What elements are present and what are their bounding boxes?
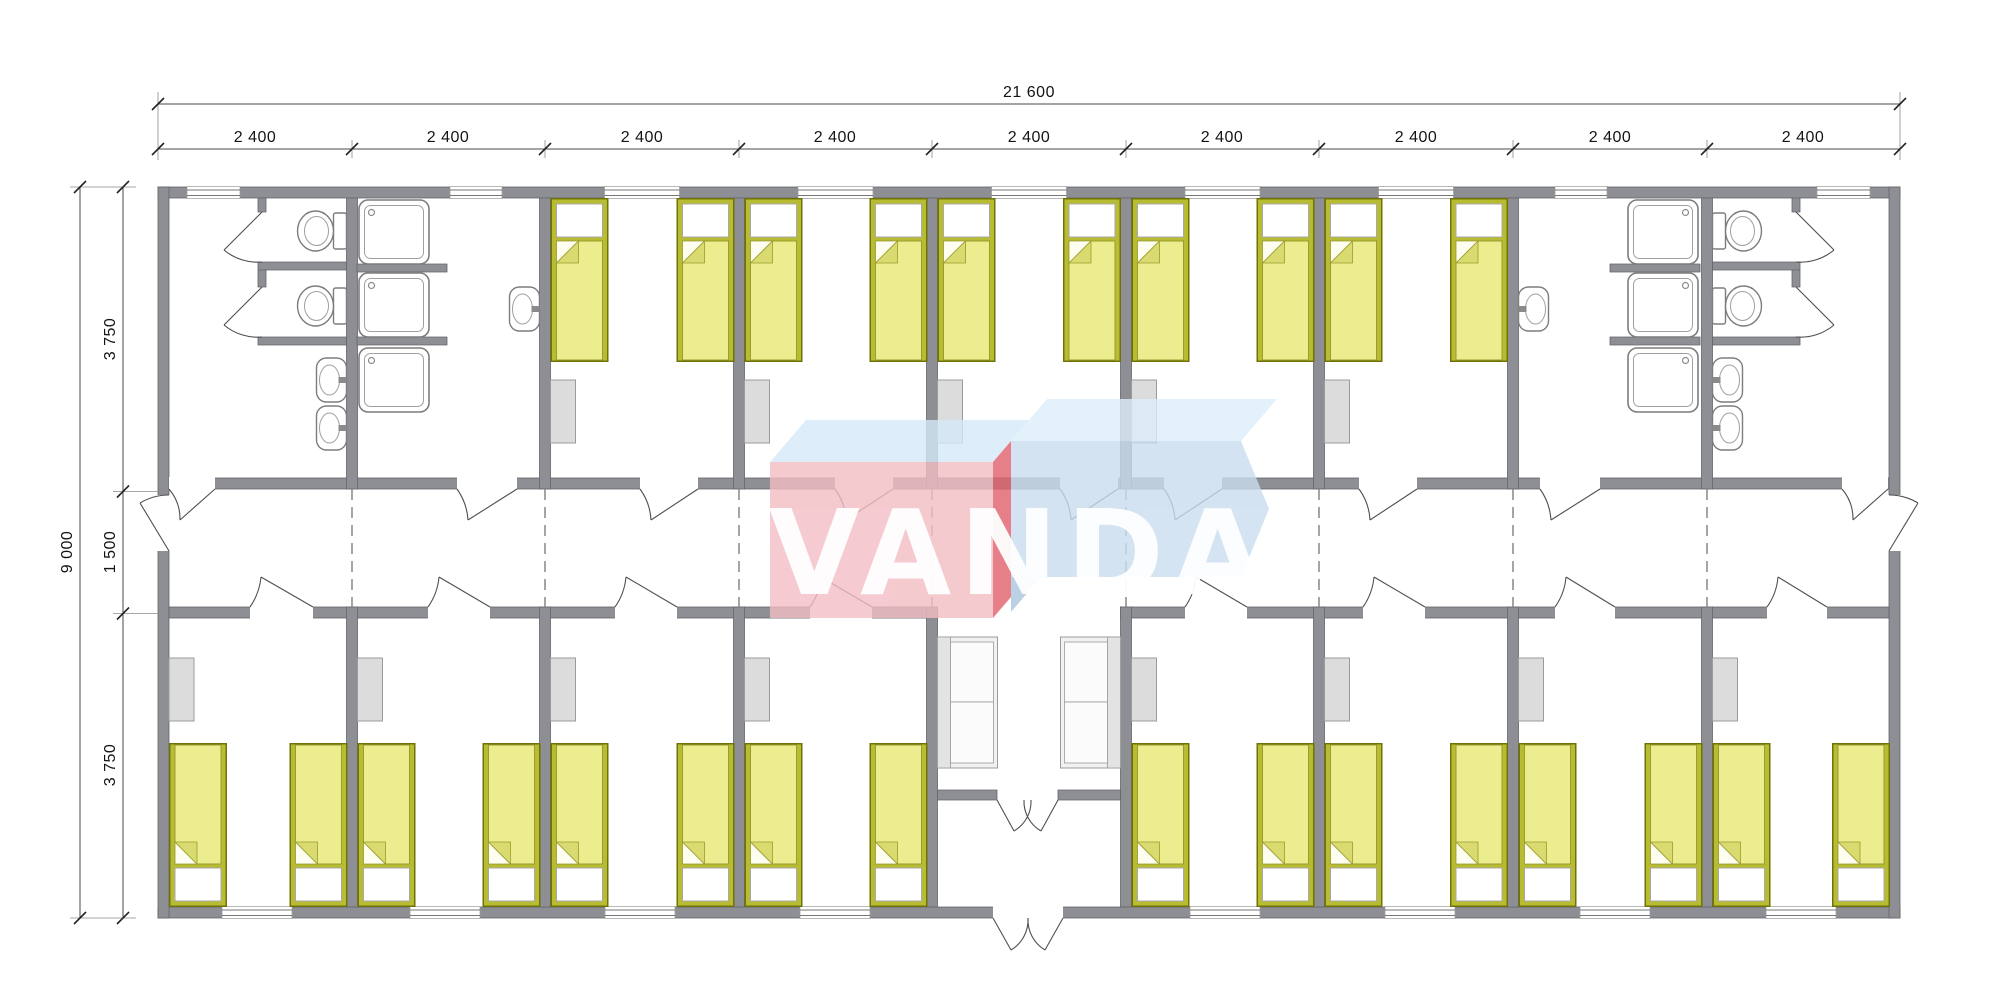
sofa: [1061, 637, 1121, 768]
bed: [745, 744, 802, 907]
bed: [1325, 199, 1382, 362]
wardrobe: [551, 658, 576, 721]
washbasin: [1713, 358, 1743, 402]
bed: [1645, 744, 1702, 907]
dim-label-module: 2 400: [1589, 129, 1632, 146]
bed: [1713, 744, 1770, 907]
watermark-text: VANDA: [769, 484, 1272, 622]
bed: [170, 744, 227, 907]
bed: [551, 199, 608, 362]
wardrobe: [745, 380, 770, 443]
dim-label-bottom-depth: 3 750: [102, 744, 119, 787]
dim-label-total-height: 9 000: [59, 531, 76, 574]
bed: [1132, 744, 1189, 907]
dim-label-module: 2 400: [234, 129, 277, 146]
bed: [1257, 199, 1314, 362]
dim-label-module: 2 400: [1201, 129, 1244, 146]
washbasin: [317, 358, 347, 402]
bed: [1519, 744, 1576, 907]
washbasin: [1713, 406, 1743, 450]
shower-tray: [359, 348, 429, 412]
bed: [745, 199, 802, 362]
washbasin: [510, 287, 540, 331]
wardrobe: [745, 658, 770, 721]
dim-label-module: 2 400: [427, 129, 470, 146]
dim-label-module: 2 400: [1395, 129, 1438, 146]
bed: [483, 744, 540, 907]
dim-label-module: 2 400: [621, 129, 664, 146]
bed: [677, 744, 734, 907]
shower-tray: [359, 273, 429, 337]
bed: [1064, 199, 1121, 362]
dimension-vertical-segments: 3 750 1 500 3 750: [102, 181, 158, 924]
wardrobe: [1519, 658, 1544, 721]
wardrobe: [1713, 658, 1738, 721]
floor-plan-page: 21 600 2 400 2 400 2 400 2 400 2 400 2 4…: [0, 0, 2000, 999]
dim-label-total-width: 21 600: [1003, 84, 1055, 101]
shower-tray: [1628, 273, 1698, 337]
bed: [870, 199, 927, 362]
bed: [1325, 744, 1382, 907]
wardrobe: [551, 380, 576, 443]
bed: [1451, 744, 1508, 907]
beds-bottom-row: [170, 744, 1890, 907]
lobby-sofas: [938, 637, 1121, 768]
sofa: [938, 637, 998, 768]
wardrobe: [1325, 658, 1350, 721]
bed: [870, 744, 927, 907]
bed: [1132, 199, 1189, 362]
bed: [1833, 744, 1890, 907]
floor-plan: 21 600 2 400 2 400 2 400 2 400 2 400 2 4…: [0, 0, 2000, 999]
toilet: [298, 286, 347, 326]
shower-tray: [1628, 348, 1698, 412]
toilet: [1713, 211, 1762, 251]
bed: [358, 744, 415, 907]
logo-blue-bevel: [1011, 399, 1277, 441]
toilet: [1713, 286, 1762, 326]
bed: [677, 199, 734, 362]
bed: [938, 199, 995, 362]
logo-pink-bevel: [770, 420, 1029, 462]
bed: [1451, 199, 1508, 362]
beds-top-row: [551, 199, 1507, 362]
toilet: [298, 211, 347, 251]
dim-label-corridor: 1 500: [102, 531, 119, 574]
dim-label-module: 2 400: [814, 129, 857, 146]
wardrobe: [1132, 658, 1157, 721]
dim-label-module: 2 400: [1008, 129, 1051, 146]
dim-label-module: 2 400: [1782, 129, 1825, 146]
wardrobe: [358, 658, 383, 721]
bed: [551, 744, 608, 907]
dim-label-top-depth: 3 750: [102, 318, 119, 361]
dimension-total-height: 9 000: [59, 181, 136, 924]
dimension-modules: 2 400 2 400 2 400 2 400 2 400 2 400 2 40…: [152, 129, 1906, 158]
shower-tray: [359, 200, 429, 264]
shower-tray: [1628, 200, 1698, 264]
wardrobe: [1325, 380, 1350, 443]
bed: [1257, 744, 1314, 907]
washbasin: [317, 406, 347, 450]
washbasin: [1519, 287, 1549, 331]
wardrobe: [169, 658, 194, 721]
bed: [290, 744, 347, 907]
